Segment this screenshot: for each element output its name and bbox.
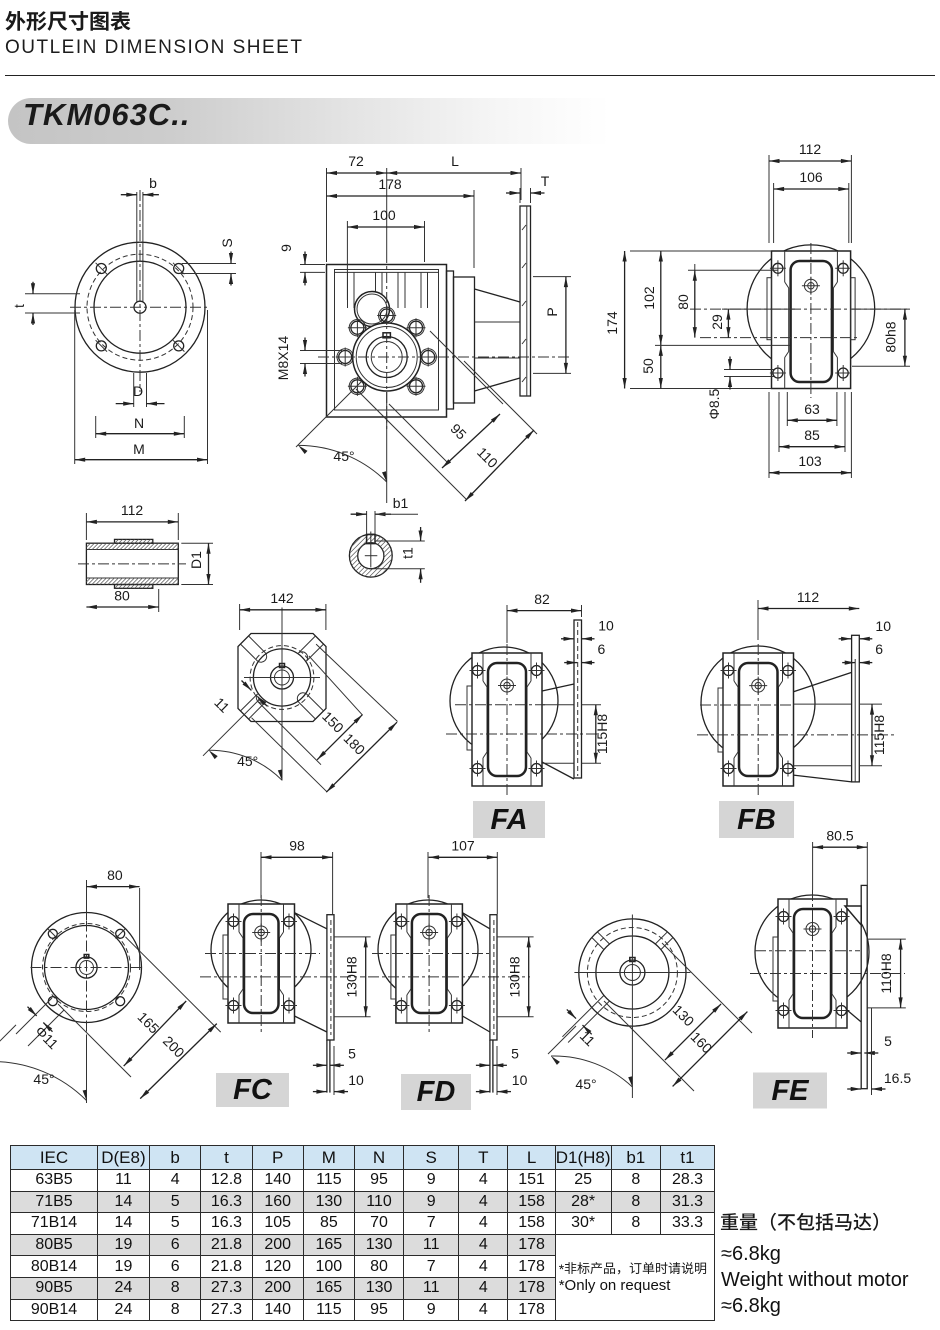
svg-text:98: 98 bbox=[289, 838, 305, 854]
svg-text:10: 10 bbox=[348, 1072, 364, 1088]
svg-text:45°: 45° bbox=[575, 1076, 596, 1092]
svg-text:102: 102 bbox=[641, 286, 657, 310]
svg-text:FA: FA bbox=[490, 804, 527, 836]
svg-text:130H8: 130H8 bbox=[507, 956, 523, 997]
svg-text:N: N bbox=[134, 415, 144, 431]
svg-text:80: 80 bbox=[114, 588, 130, 604]
svg-text:S: S bbox=[219, 238, 235, 247]
svg-text:T: T bbox=[541, 173, 550, 189]
svg-text:115H8: 115H8 bbox=[594, 714, 610, 754]
svg-text:b: b bbox=[149, 175, 157, 191]
svg-text:L: L bbox=[451, 153, 459, 169]
svg-text:112: 112 bbox=[121, 502, 144, 518]
svg-text:5: 5 bbox=[348, 1045, 356, 1061]
svg-text:10: 10 bbox=[875, 618, 891, 634]
svg-text:5: 5 bbox=[511, 1045, 519, 1061]
svg-text:5: 5 bbox=[884, 1033, 892, 1049]
svg-text:130H8: 130H8 bbox=[344, 956, 360, 997]
svg-text:6: 6 bbox=[875, 641, 883, 657]
svg-text:107: 107 bbox=[451, 838, 475, 854]
svg-text:9: 9 bbox=[278, 244, 294, 252]
svg-text:112: 112 bbox=[797, 589, 820, 605]
svg-text:106: 106 bbox=[799, 169, 823, 185]
svg-text:FD: FD bbox=[417, 1076, 456, 1108]
svg-text:29: 29 bbox=[709, 314, 725, 330]
svg-text:D1: D1 bbox=[188, 551, 204, 569]
svg-text:6: 6 bbox=[598, 641, 606, 657]
svg-text:103: 103 bbox=[798, 453, 822, 469]
svg-text:150: 150 bbox=[319, 708, 347, 736]
svg-text:72: 72 bbox=[348, 153, 364, 169]
svg-text:Φ8.5: Φ8.5 bbox=[706, 388, 722, 419]
svg-text:110H8: 110H8 bbox=[878, 953, 894, 993]
svg-text:63: 63 bbox=[804, 401, 820, 417]
svg-text:95: 95 bbox=[447, 420, 469, 442]
svg-text:t: t bbox=[11, 304, 27, 308]
svg-text:100: 100 bbox=[372, 207, 396, 223]
svg-text:16.5: 16.5 bbox=[884, 1070, 911, 1086]
svg-text:45°: 45° bbox=[33, 1071, 54, 1087]
svg-text:82: 82 bbox=[534, 591, 550, 607]
svg-text:FB: FB bbox=[737, 804, 776, 836]
svg-text:165: 165 bbox=[135, 1009, 163, 1037]
svg-text:Φ11: Φ11 bbox=[32, 1023, 62, 1053]
svg-text:t1: t1 bbox=[399, 547, 415, 559]
svg-text:M8X14: M8X14 bbox=[275, 336, 291, 381]
svg-text:115H8: 115H8 bbox=[871, 715, 887, 755]
svg-text:80h8: 80h8 bbox=[882, 321, 898, 352]
svg-text:80: 80 bbox=[107, 867, 123, 883]
svg-text:80.5: 80.5 bbox=[826, 828, 853, 844]
svg-text:FC: FC bbox=[233, 1074, 273, 1106]
svg-text:FE: FE bbox=[771, 1075, 810, 1107]
svg-text:45°: 45° bbox=[333, 448, 354, 464]
svg-text:50: 50 bbox=[640, 358, 656, 374]
svg-text:178: 178 bbox=[378, 176, 402, 192]
svg-text:b1: b1 bbox=[393, 495, 409, 511]
svg-text:174: 174 bbox=[604, 311, 620, 335]
svg-text:80: 80 bbox=[675, 294, 691, 310]
svg-text:45°: 45° bbox=[237, 753, 258, 769]
svg-text:10: 10 bbox=[512, 1072, 528, 1088]
svg-text:D: D bbox=[133, 383, 143, 399]
svg-text:85: 85 bbox=[804, 427, 820, 443]
svg-text:P: P bbox=[544, 307, 560, 316]
svg-text:10: 10 bbox=[598, 618, 614, 634]
svg-text:142: 142 bbox=[270, 590, 294, 606]
svg-text:M: M bbox=[133, 441, 145, 457]
svg-text:112: 112 bbox=[799, 141, 822, 157]
svg-text:11: 11 bbox=[211, 694, 233, 716]
